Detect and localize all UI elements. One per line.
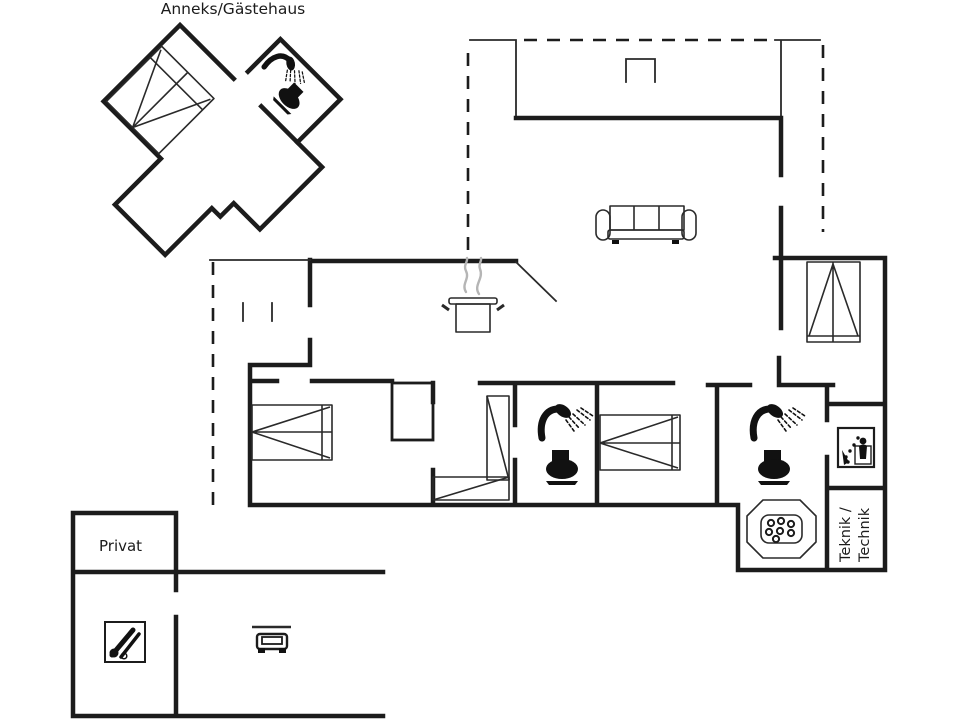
floor-plan: Anneks/Gästehaus	[0, 0, 960, 720]
interior-thin-lines	[210, 260, 556, 321]
bunk-bed-icon	[433, 396, 509, 500]
sofa-icon	[596, 206, 696, 244]
annex-guesthouse	[58, 0, 366, 289]
svg-text:Technik: Technik	[857, 507, 873, 563]
annex-label: Anneks/Gästehaus	[161, 0, 305, 18]
garden-tools-icon	[105, 622, 145, 662]
privat-label: Privat	[99, 537, 142, 555]
floor-plan-page: Anneks/Gästehaus	[0, 0, 960, 720]
hot-tub-icon	[747, 500, 816, 558]
svg-text:Teknik /: Teknik /	[838, 507, 854, 563]
car-icon	[252, 627, 291, 653]
main-house-walls	[250, 118, 885, 570]
annex-walls	[58, 25, 322, 289]
terrace-dashed-lines	[213, 40, 823, 508]
terrace-edges	[470, 40, 820, 118]
cooking-pot-icon	[442, 258, 504, 332]
shower-icon	[264, 46, 313, 95]
shower-icon	[753, 401, 805, 438]
toilet-icon	[758, 450, 790, 485]
washing-machine-icon	[838, 428, 874, 467]
double-bed-icon	[807, 262, 860, 342]
closet	[392, 383, 433, 440]
toilet-icon	[271, 79, 308, 116]
shower-icon	[541, 401, 593, 438]
double-bed-icon	[600, 415, 680, 470]
double-bed-icon	[252, 405, 332, 460]
grill-icon	[626, 59, 655, 82]
annex-double-bed-icon	[106, 46, 213, 153]
technical-room-label: Teknik / Technik	[838, 507, 873, 563]
toilet-icon	[546, 450, 578, 485]
